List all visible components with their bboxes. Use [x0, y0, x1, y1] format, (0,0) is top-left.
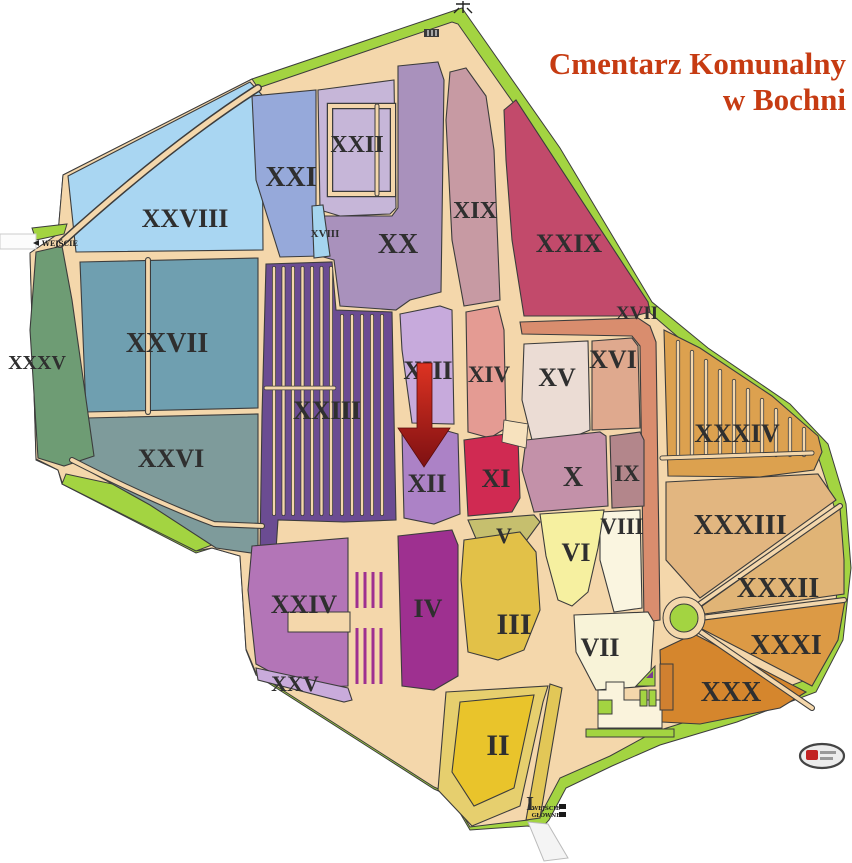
- section-xxix-label: XXIX: [536, 229, 603, 258]
- section-xxx-label: XXX: [701, 677, 762, 708]
- section-xxiv-label: XXIV: [271, 590, 338, 619]
- section-xx-label: XX: [378, 229, 418, 260]
- cross-icon: [454, 1, 472, 13]
- side-exit-road: [0, 234, 36, 249]
- section-xxv-label: XXV: [271, 671, 319, 696]
- main-exit-road: [528, 822, 568, 861]
- section-xxiii-label: XXIII: [293, 396, 361, 425]
- section-xxxiv-label: XXXIV: [694, 419, 779, 448]
- section-xxvii-label: XXVII: [126, 328, 208, 359]
- section-xxi-label: XXI: [265, 162, 316, 193]
- building-green-bar: [649, 690, 656, 706]
- section-xxxi-label: XXXI: [750, 630, 822, 661]
- section-xxix-area: [504, 100, 650, 316]
- section-xxvi-label: XXVI: [138, 444, 204, 473]
- cemetery-map: I II III IV V VI VII VIII IX X XI XII XI…: [0, 0, 852, 863]
- section-ix-label: IX: [614, 461, 640, 486]
- section-ii-label: II: [486, 729, 509, 762]
- section-xvi-label: XVI: [589, 345, 637, 374]
- logo-badge: [800, 744, 844, 768]
- orange-strip: [660, 664, 673, 710]
- gate-icon: [424, 29, 439, 37]
- section-xi-label: XI: [482, 464, 511, 493]
- side-entrance-label: WEJŚCIE: [41, 239, 78, 248]
- title-line-2: w Bochni: [723, 82, 847, 117]
- section-vi-label: VI: [562, 538, 591, 567]
- section-xxxii-label: XXXII: [737, 573, 819, 604]
- section-xv-label: XV: [538, 363, 576, 392]
- section-iv-label: IV: [414, 594, 443, 623]
- section-x-label: X: [563, 462, 583, 493]
- map-title: Cmentarz Komunalny w Bochni: [549, 46, 847, 117]
- main-entrance-icon: [559, 804, 566, 809]
- building-green-square: [598, 700, 612, 714]
- section-xxxiii-label: XXXIII: [693, 510, 786, 541]
- title-line-1: Cmentarz Komunalny: [549, 46, 847, 81]
- section-viii-label: VIII: [600, 514, 644, 539]
- section-xix-label: XIX: [453, 198, 498, 224]
- main-entrance-label-1: WEJŚCIE: [531, 804, 560, 812]
- section-xviii-label: XVIII: [311, 228, 340, 240]
- section-v-label: V: [496, 523, 512, 548]
- section-vii-label: VII: [580, 633, 619, 662]
- section-xxii-label: XXII: [330, 132, 383, 158]
- main-entrance-label-2: GŁÓWNE: [532, 811, 561, 819]
- section-xii-label: XII: [407, 469, 446, 498]
- section-xxviii-label: XXVIII: [142, 204, 229, 233]
- section-xv-area: [522, 341, 590, 444]
- section-xiv-label: XIV: [468, 362, 511, 387]
- roundabout: [663, 597, 705, 639]
- section-xxxv-label: XXXV: [8, 352, 66, 374]
- section-iii-label: III: [496, 608, 531, 641]
- main-entrance-icon: [559, 812, 566, 817]
- green-hedge: [586, 729, 674, 737]
- section-xvii-label: XVII: [616, 303, 658, 324]
- main-entrance: WEJŚCIE GŁÓWNE: [531, 804, 566, 819]
- building-green-bar: [640, 690, 647, 706]
